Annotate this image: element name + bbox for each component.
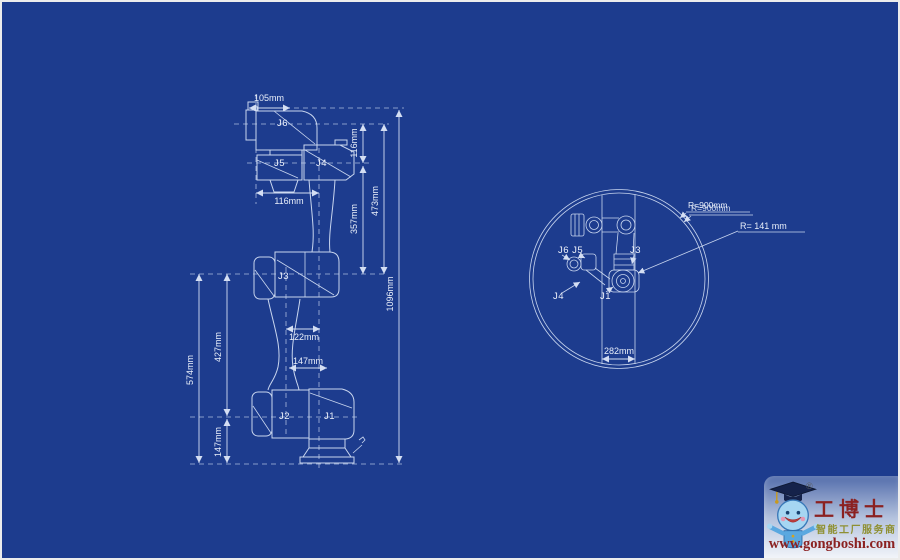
side-dimensions: 105mm 116mm 357mm 473mm 1096mm 574mm 427… <box>185 93 399 463</box>
lower-arm-link <box>268 299 300 390</box>
base-pedestal <box>300 439 354 463</box>
mascot-eye-left <box>786 511 790 515</box>
base-detail-callout <box>353 437 365 453</box>
top-wrist-assembly-j6-inner <box>570 260 578 268</box>
top-view: J6 J5 J4 J1 J3 R=900mm R=900mm R= 141 mm… <box>530 190 806 369</box>
top-wrist-assembly-j5-box <box>581 254 596 270</box>
top-wrist-assembly-links <box>586 268 610 285</box>
top-tool-flange-lines <box>575 214 579 236</box>
label-j5: J5 <box>274 158 285 169</box>
leader-outer-radius-1 <box>680 213 686 218</box>
leader-top-j4 <box>562 282 580 293</box>
top-forearm-link <box>602 218 619 232</box>
dim-147h-label: 147mm <box>293 356 323 366</box>
construction-lines-horizontal <box>190 108 404 464</box>
j2-left-block-diagonal <box>253 406 271 433</box>
mascot-arm-left <box>771 527 784 533</box>
dim-147v-label: 147mm <box>213 427 223 457</box>
top-base-ring-3 <box>621 279 626 284</box>
mascot-arm-right <box>803 527 816 533</box>
cap-tassel-end <box>775 500 779 504</box>
brand-tagline: 智能工厂服务商 <box>816 521 897 536</box>
dim-116h-label: 116mm <box>274 196 303 206</box>
side-view: 105mm 116mm 357mm 473mm 1096mm 574mm 427… <box>185 93 404 470</box>
dim-116v-label: 116mm <box>349 128 359 157</box>
dim-357-label: 357mm <box>349 204 359 234</box>
mascot-hand-left <box>767 524 772 529</box>
brand-url: www.gongboshi.com <box>764 536 900 553</box>
label-j6: J6 <box>277 118 288 129</box>
inner-radius-label: R= 141 mm <box>740 221 787 231</box>
dim-105-label: 105mm <box>254 93 284 103</box>
label-j3: J3 <box>278 271 289 282</box>
top-labels: J6 J5 J4 J1 J3 R=900mm R=900mm R= 141 mm… <box>553 200 805 359</box>
upper-arm-link <box>309 180 335 252</box>
top-wrist-joint-inner <box>590 221 599 230</box>
outer-radius-label-duplicate: R=900mm <box>691 203 730 213</box>
side-robot-elbow <box>254 252 339 299</box>
dim-282-label: 282mm <box>604 346 634 356</box>
blueprint-canvas: 105mm 116mm 357mm 473mm 1096mm 574mm 427… <box>0 0 900 560</box>
top-elbow-joint-inner <box>621 220 631 230</box>
leader-inner-radius <box>638 231 738 273</box>
label-j2: J2 <box>279 411 290 422</box>
j5-foot <box>270 180 298 192</box>
dim-427-label: 427mm <box>213 332 223 362</box>
mascot-eye-right <box>797 511 801 515</box>
dim-1096-label: 1096mm <box>385 276 395 311</box>
label-top-j3: J3 <box>630 245 641 256</box>
j1-housing-diagonal <box>310 393 352 408</box>
dim-473-label: 473mm <box>370 186 380 216</box>
mascot-head <box>778 500 809 531</box>
gongboshi-logo: ® 工博士 智能工厂服务商 www.gongboshi.com <box>764 476 900 560</box>
top-base-ring-1 <box>612 270 634 292</box>
label-j1: J1 <box>324 411 335 422</box>
robot-dimension-drawing: 105mm 116mm 357mm 473mm 1096mm 574mm 427… <box>2 2 900 560</box>
side-robot-base-joints <box>252 389 365 463</box>
label-top-j6-j5: J6 J5 <box>558 245 583 256</box>
label-j4: J4 <box>316 158 327 169</box>
brand-name: 工博士 <box>814 493 889 522</box>
label-top-j1: J1 <box>600 291 611 302</box>
j6-housing <box>256 111 317 150</box>
top-base-ring-2 <box>617 275 630 288</box>
top-wrist-joint-outer <box>586 217 602 233</box>
side-robot-wrist <box>246 102 354 192</box>
top-elbow-joint-outer <box>617 216 635 234</box>
top-tool-flange <box>571 214 584 236</box>
dim-574-label: 574mm <box>185 355 195 385</box>
j4-housing-diagonal <box>305 150 351 177</box>
wrist-neck <box>270 150 302 155</box>
side-joint-labels: J6 J5 J4 J3 J2 J1 <box>274 118 335 422</box>
dim-122-label: 122mm <box>289 332 319 342</box>
top-base-housing <box>609 270 639 292</box>
registered-trademark-mark: ® <box>806 481 813 491</box>
j2-housing <box>272 390 309 438</box>
